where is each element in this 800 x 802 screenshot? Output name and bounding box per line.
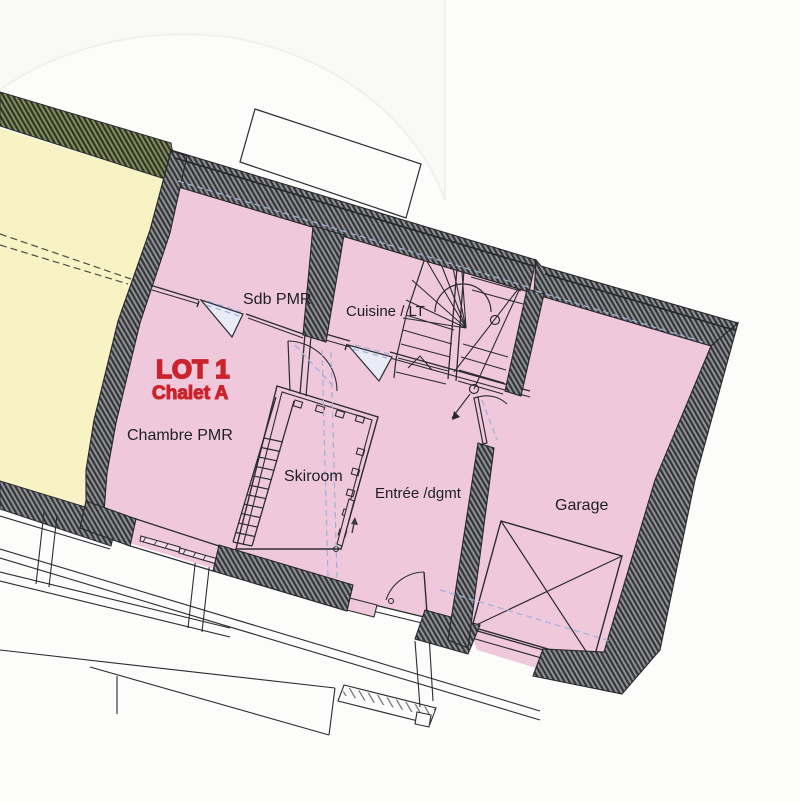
svg-text:Sdb PMR: Sdb PMR xyxy=(243,291,311,308)
svg-text:Skiroom: Skiroom xyxy=(284,468,343,485)
svg-text:Chalet A: Chalet A xyxy=(152,383,229,404)
svg-text:Cuisine / LT: Cuisine / LT xyxy=(346,303,425,320)
svg-text:Chambre PMR: Chambre PMR xyxy=(127,427,233,444)
svg-text:Garage: Garage xyxy=(555,497,608,514)
svg-text:LOT 1: LOT 1 xyxy=(156,354,230,384)
svg-text:Entrée /dgmt: Entrée /dgmt xyxy=(375,485,462,502)
